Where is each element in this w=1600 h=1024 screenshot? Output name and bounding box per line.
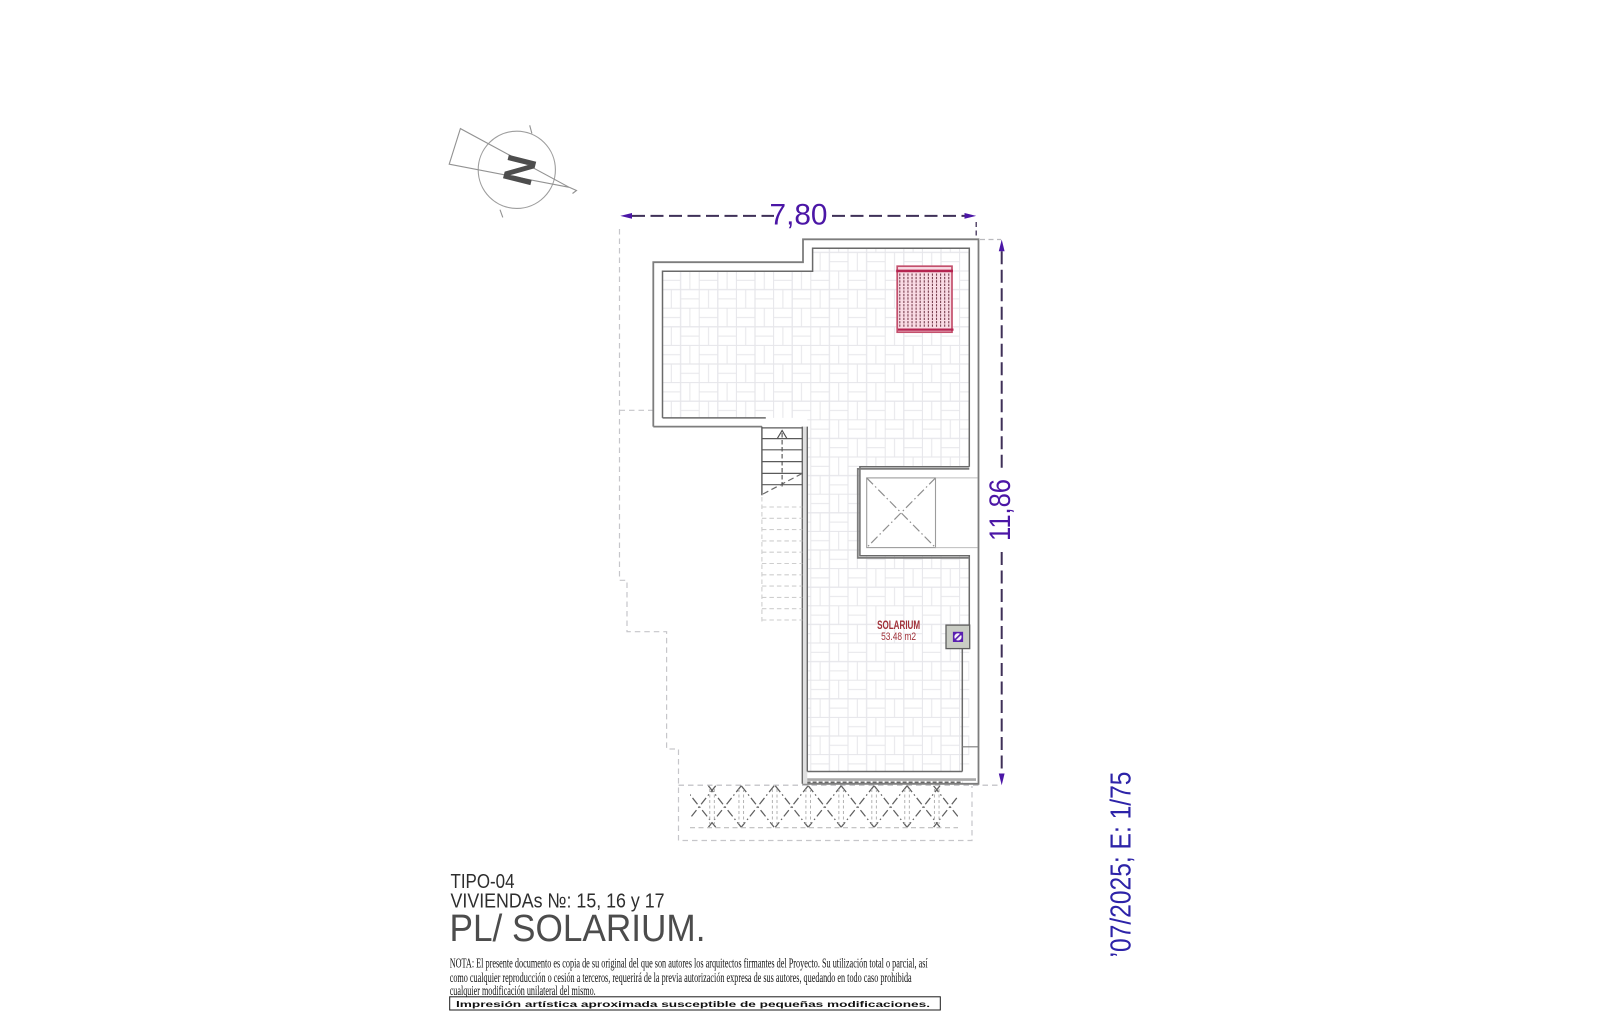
svg-text:11,86: 11,86 — [984, 479, 1017, 541]
svg-text:cualquier modificación unilate: cualquier modificación unilateral del mi… — [450, 983, 596, 998]
svg-text:SOLARIUM: SOLARIUM — [877, 618, 920, 632]
svg-text:7,80: 7,80 — [770, 199, 828, 232]
svg-text:PL/ SOLARIUM.: PL/ SOLARIUM. — [450, 908, 706, 950]
svg-text:’07/2025; E: 1/75: ’07/2025; E: 1/75 — [1106, 772, 1138, 958]
svg-text:Impresión artística aproxima: Impresión artística aproximada susceptib… — [456, 1000, 930, 1009]
svg-text:NOTA: El presente documento es: NOTA: El presente documento es copia de … — [450, 956, 928, 971]
svg-text:53.48 m2: 53.48 m2 — [881, 631, 916, 643]
